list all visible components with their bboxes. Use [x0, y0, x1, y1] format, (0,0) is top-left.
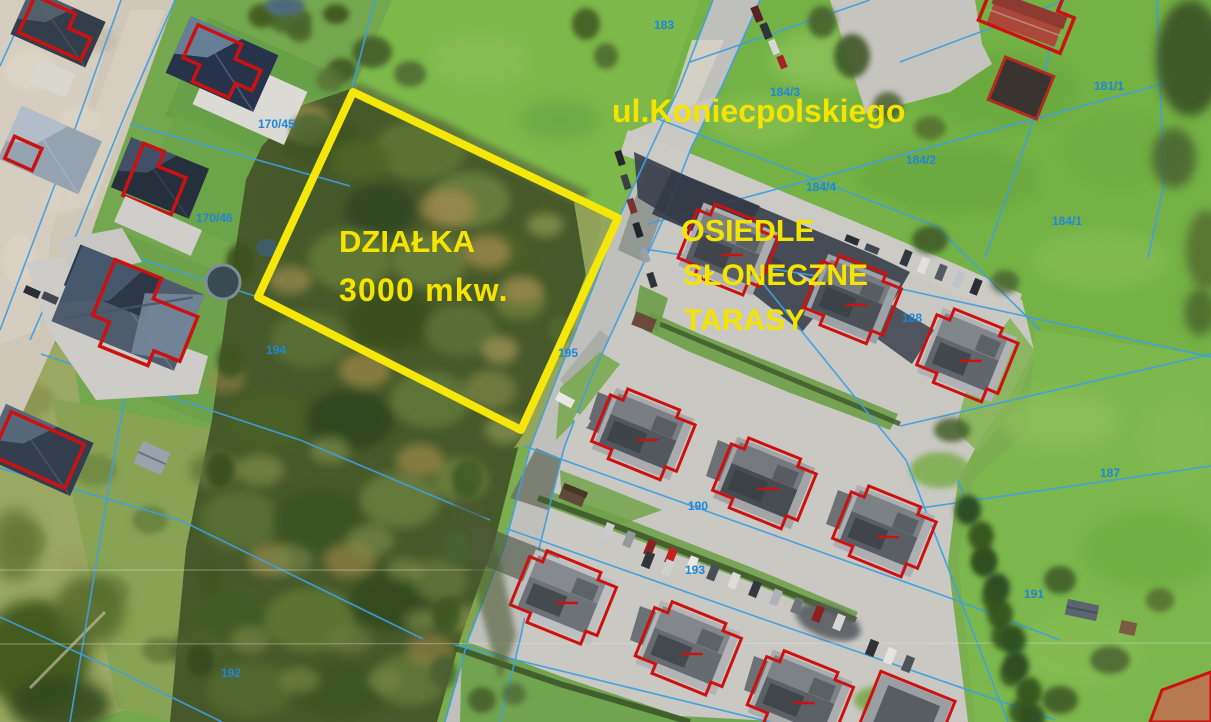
svg-text:190: 190 — [688, 499, 708, 513]
svg-text:184/2: 184/2 — [906, 153, 936, 167]
svg-text:SŁONECZNE: SŁONECZNE — [683, 259, 868, 292]
svg-text:184/3: 184/3 — [770, 85, 800, 99]
svg-text:170/45: 170/45 — [258, 117, 295, 131]
svg-text:ul.Koniecpolskiego: ul.Koniecpolskiego — [612, 93, 905, 129]
svg-text:188: 188 — [902, 311, 922, 325]
svg-text:184/1: 184/1 — [1052, 214, 1082, 228]
svg-text:OSIEDLE: OSIEDLE — [681, 214, 815, 248]
svg-text:DZIAŁKA: DZIAŁKA — [339, 224, 475, 259]
svg-text:184/4: 184/4 — [806, 180, 836, 194]
svg-text:192: 192 — [221, 666, 241, 680]
svg-text:187: 187 — [1100, 466, 1120, 480]
svg-text:191: 191 — [1024, 587, 1044, 601]
svg-text:183: 183 — [654, 18, 674, 32]
svg-text:170/46: 170/46 — [196, 211, 233, 225]
svg-text:195: 195 — [558, 346, 578, 360]
svg-text:193: 193 — [685, 563, 705, 577]
svg-text:181/1: 181/1 — [1094, 79, 1124, 93]
svg-text:TARASY: TARASY — [684, 304, 805, 337]
svg-text:3000 mkw.: 3000 mkw. — [339, 272, 509, 308]
svg-text:194: 194 — [266, 343, 286, 357]
